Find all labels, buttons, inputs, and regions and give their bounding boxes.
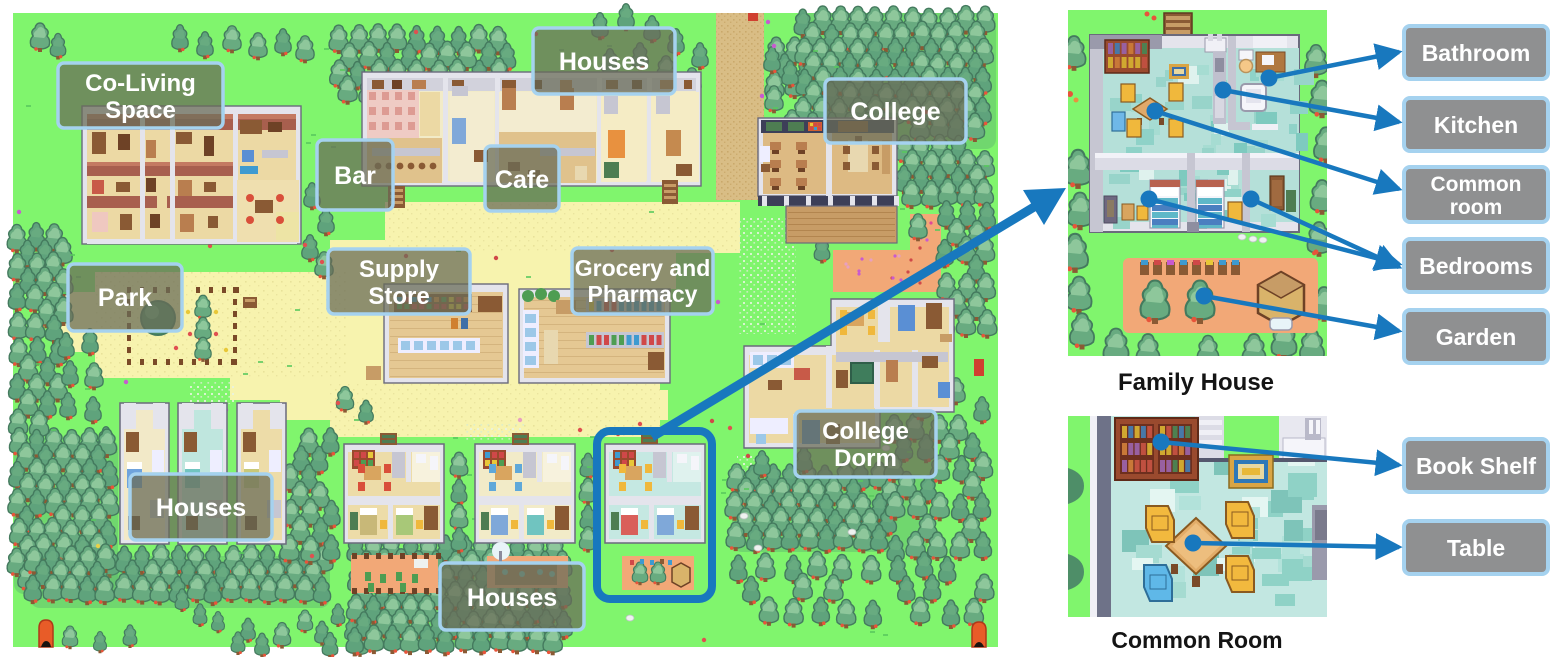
svg-text:Park: Park [98,284,152,312]
svg-text:Houses: Houses [467,584,557,612]
svg-text:room: room [1450,196,1503,219]
svg-text:Houses: Houses [559,48,649,76]
svg-text:Co-Living: Co-Living [85,70,196,97]
svg-text:College: College [822,418,909,445]
svg-text:Book Shelf: Book Shelf [1416,453,1536,479]
svg-text:Supply: Supply [359,256,440,283]
svg-text:Grocery and: Grocery and [575,255,711,281]
svg-text:Common: Common [1431,173,1522,196]
svg-text:Houses: Houses [156,494,246,522]
svg-text:Bedrooms: Bedrooms [1419,253,1533,279]
svg-text:Table: Table [1447,535,1505,561]
svg-text:College: College [850,98,940,126]
svg-text:Garden: Garden [1436,324,1517,350]
svg-text:Space: Space [105,97,176,124]
svg-text:Cafe: Cafe [495,166,549,194]
svg-text:Bar: Bar [334,162,376,190]
svg-text:Bathroom: Bathroom [1422,40,1531,66]
svg-text:Store: Store [368,283,429,310]
svg-text:Pharmacy: Pharmacy [588,281,698,307]
svg-text:Dorm: Dorm [834,445,897,472]
svg-text:Kitchen: Kitchen [1434,112,1518,138]
svg-text:Common Room: Common Room [1111,627,1282,653]
svg-text:Family House: Family House [1118,369,1274,396]
